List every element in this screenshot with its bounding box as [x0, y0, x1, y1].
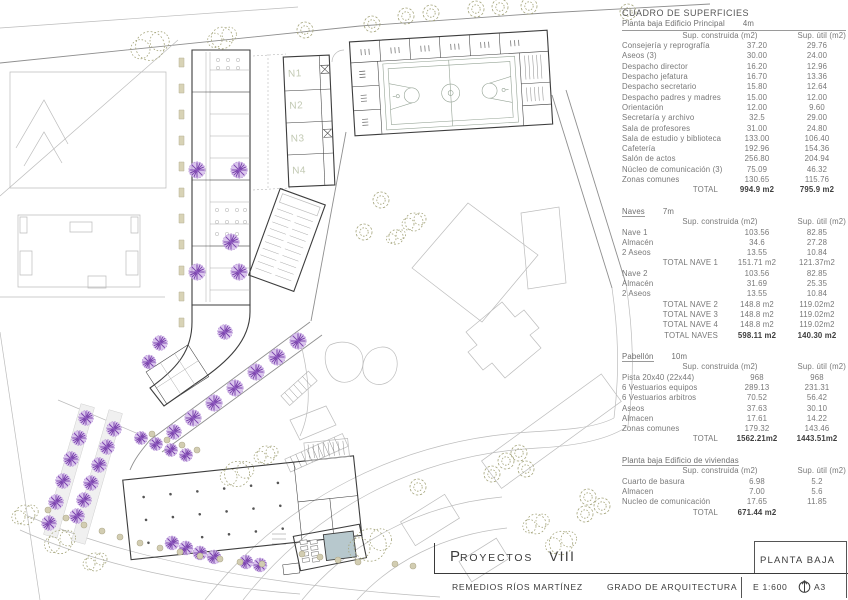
- row-value-constructed: 70.52: [726, 393, 788, 403]
- row-value-useful: 82.85: [788, 228, 846, 238]
- drawing-scale: E 1:600: [753, 582, 788, 592]
- table-row: TOTAL1562.21m21443.51m2: [622, 434, 846, 444]
- row-label: Secretaría y archivo: [622, 113, 726, 123]
- row-label: Nave 1: [622, 228, 726, 238]
- section-heading: Planta baja Edificio de viviendas: [622, 456, 739, 467]
- row-value-useful: 154.36: [788, 144, 846, 154]
- titleblock-divider: [741, 577, 742, 598]
- course-name: GRADO DE ARQUITECTURA: [607, 582, 737, 592]
- row-label: Almacén: [622, 238, 726, 248]
- section-heading: Planta baja Edificio Principal: [622, 19, 725, 30]
- row-value-useful: 30.10: [788, 404, 846, 414]
- row-label: Despacho padres y madres: [622, 93, 726, 103]
- row-value-constructed: 103.56: [726, 269, 788, 279]
- row-value-constructed: 7.00: [726, 487, 788, 497]
- row-value-constructed: 15.00: [726, 93, 788, 103]
- column-headers: Sup. construida (m2)Sup. útil (m2): [622, 217, 846, 227]
- row-value-constructed: 148.8 m2: [726, 300, 788, 310]
- project-title-initial: P: [450, 548, 460, 565]
- table-row: Pista 20x40 (22x44)968968: [622, 373, 846, 383]
- row-label: Despacho secretario: [622, 82, 726, 92]
- table-row: 6 Vestuarios arbitros70.5256.42: [622, 393, 846, 403]
- row-label: Nucleo de comunicación: [622, 497, 726, 507]
- table-section: Naves7mSup. construida (m2)Sup. útil (m2…: [622, 207, 846, 341]
- table-row: TOTAL994.9 m2795.9 m2: [622, 185, 846, 195]
- row-value-useful: 12.64: [788, 82, 846, 92]
- row-value-constructed: 130.65: [726, 175, 788, 185]
- row-label: TOTAL: [622, 508, 726, 518]
- table-row: 2 Aseos13.5510.84: [622, 248, 846, 258]
- row-label: Salón de actos: [622, 154, 726, 164]
- section-size: 10m: [672, 352, 688, 363]
- row-label: Pista 20x40 (22x44): [622, 373, 726, 383]
- row-value-useful: 140.30 m2: [788, 331, 846, 341]
- auditorium: [249, 189, 326, 292]
- context-buildings: [10, 72, 621, 582]
- table-row: 6 Vestuarios equipos289.13231.31: [622, 383, 846, 393]
- paper-size: A3: [814, 582, 826, 592]
- table-section: Pabellón10mSup. construida (m2)Sup. útil…: [622, 352, 846, 445]
- table-row: Aseos (3)30.0024.00: [622, 51, 846, 61]
- row-label: 2 Aseos: [622, 289, 726, 299]
- row-value-useful: 12.96: [788, 62, 846, 72]
- pool: [323, 531, 356, 560]
- table-row: Sala de estudio y biblioteca133.00106.40: [622, 134, 846, 144]
- project-title-rest: ROYECTOS: [460, 552, 533, 564]
- table-title: CUADRO DE SUPERFICIES: [622, 8, 846, 18]
- row-value-constructed: 179.32: [726, 424, 788, 434]
- table-section: Planta baja Edificio Principal4mSup. con…: [622, 19, 846, 195]
- row-value-constructed: 37.63: [726, 404, 788, 414]
- table-row: Despacho director16.2012.96: [622, 62, 846, 72]
- row-label: 6 Vestuarios arbitros: [622, 393, 726, 403]
- row-label: Consejería y reprografía: [622, 41, 726, 51]
- table-row: TOTAL NAVE 1151.71 m2121.37m2: [622, 258, 846, 268]
- row-value-useful: 1443.51m2: [788, 434, 846, 444]
- row-value-useful: 115.76: [788, 175, 846, 185]
- row-label: Orientación: [622, 103, 726, 113]
- row-label: TOTAL NAVE 1: [622, 258, 726, 268]
- row-value-useful: 13.36: [788, 72, 846, 82]
- table-row: Salón de actos256.80204.94: [622, 154, 846, 164]
- row-value-constructed: 133.00: [726, 134, 788, 144]
- naves-building: N1 N2 N3 N4: [283, 55, 335, 187]
- table-row: Almacen7.005.6: [622, 487, 846, 497]
- table-row: Almacen17.6114.22: [622, 414, 846, 424]
- row-value-constructed: 30.00: [726, 51, 788, 61]
- nave-label: N1: [288, 68, 302, 80]
- author-name: REMEDIOS RÍOS MARTÍNEZ: [452, 582, 583, 592]
- section-heading-row: Naves7m: [622, 207, 846, 218]
- row-value-useful: 24.80: [788, 124, 846, 134]
- table-row: Sala de profesores31.0024.80: [622, 124, 846, 134]
- titleblock-rule: [434, 573, 848, 574]
- olive-trees: [12, 0, 636, 571]
- row-value-constructed: 12.00: [726, 103, 788, 113]
- table-row: Núcleo de comunicación (3)75.0946.32: [622, 165, 846, 175]
- row-value-useful: 119.02m2: [788, 310, 846, 320]
- row-label: Nave 2: [622, 269, 726, 279]
- col-header-useful: Sup. útil (m2): [768, 31, 846, 41]
- row-value-useful: 143.46: [788, 424, 846, 434]
- row-value-constructed: 103.56: [726, 228, 788, 238]
- row-value-useful: 106.40: [788, 134, 846, 144]
- row-value-constructed: 148.8 m2: [726, 310, 788, 320]
- table-section: Planta baja Edificio de viviendasSup. co…: [622, 456, 846, 518]
- row-label: Zonas comunes: [622, 424, 726, 434]
- table-row: Almacén31.6925.35: [622, 279, 846, 289]
- column-headers: Sup. construida (m2)Sup. útil (m2): [622, 362, 846, 372]
- table-row: TOTAL NAVES598.11 m2140.30 m2: [622, 331, 846, 341]
- table-row: Almacén34.627.28: [622, 238, 846, 248]
- row-value-constructed: 15.80: [726, 82, 788, 92]
- project-title: PROYECTOSVIII: [450, 548, 575, 566]
- basketball-court: [383, 56, 519, 130]
- bench-markers: [179, 58, 184, 327]
- row-value-constructed: 31.69: [726, 279, 788, 289]
- row-value-constructed: 192.96: [726, 144, 788, 154]
- row-value-useful: 25.35: [788, 279, 846, 289]
- row-value-constructed: 32.5: [726, 113, 788, 123]
- row-value-useful: 5.2: [788, 477, 846, 487]
- row-value-useful: 82.85: [788, 269, 846, 279]
- row-label: TOTAL NAVE 2: [622, 300, 726, 310]
- row-value-useful: 10.84: [788, 289, 846, 299]
- row-label: 2 Aseos: [622, 248, 726, 258]
- row-value-constructed: 16.20: [726, 62, 788, 72]
- row-label: Despacho director: [622, 62, 726, 72]
- row-label: TOTAL NAVES: [622, 331, 726, 341]
- surface-table: CUADRO DE SUPERFICIES Planta baja Edific…: [622, 8, 846, 529]
- nave-label: N2: [289, 100, 303, 112]
- row-value-constructed: 37.20: [726, 41, 788, 51]
- row-value-constructed: 994.9 m2: [726, 185, 788, 195]
- row-value-constructed: 151.71 m2: [726, 258, 788, 268]
- table-row: Consejería y reprografía37.2029.76: [622, 41, 846, 51]
- north-arrow-icon: [797, 578, 812, 594]
- sheet-right-border: [846, 541, 847, 598]
- row-value-useful: 29.76: [788, 41, 846, 51]
- row-label: Aseos: [622, 404, 726, 414]
- row-label: Cuarto de basura: [622, 477, 726, 487]
- sheet-name-box-left: [754, 541, 755, 573]
- row-value-constructed: 16.70: [726, 72, 788, 82]
- col-header-useful: Sup. útil (m2): [768, 466, 846, 476]
- table-row: Secretaría y archivo32.529.00: [622, 113, 846, 123]
- row-value-useful: 11.85: [788, 497, 846, 507]
- table-row: Despacho secretario15.8012.64: [622, 82, 846, 92]
- row-label: Almacen: [622, 487, 726, 497]
- nave-label: N3: [291, 133, 305, 145]
- roads: [0, 4, 710, 600]
- row-value-useful: 10.84: [788, 248, 846, 258]
- sheet-name-box-top: [754, 541, 846, 542]
- table-row: Nucleo de comunicación17.6511.85: [622, 497, 846, 507]
- row-value-useful: 119.02m2: [788, 300, 846, 310]
- row-value-constructed: 17.61: [726, 414, 788, 424]
- row-label: Despacho jefatura: [622, 72, 726, 82]
- row-value-useful: 121.37m2: [788, 258, 846, 268]
- row-value-useful: 204.94: [788, 154, 846, 164]
- section-heading: Pabellón: [622, 352, 654, 363]
- row-label: TOTAL: [622, 434, 726, 444]
- main-building: [146, 50, 250, 406]
- drawing-sheet: N1 N2 N3 N4: [0, 0, 848, 600]
- row-value-constructed: 1562.21m2: [726, 434, 788, 444]
- column-headers: Sup. construida (m2)Sup. útil (m2): [622, 31, 846, 41]
- col-header-constructed: Sup. construida (m2): [672, 217, 768, 227]
- col-header-useful: Sup. útil (m2): [768, 217, 846, 227]
- row-label: Cafetería: [622, 144, 726, 154]
- row-value-constructed: 671.44 m2: [726, 508, 788, 518]
- section-size: 7m: [663, 207, 674, 218]
- row-value-constructed: 148.8 m2: [726, 320, 788, 330]
- row-value-useful: 29.00: [788, 113, 846, 123]
- row-value-constructed: 13.55: [726, 248, 788, 258]
- table-row: TOTAL671.44 m2: [622, 508, 846, 518]
- project-number: VIII: [549, 549, 575, 564]
- table-row: Cuarto de basura6.985.2: [622, 477, 846, 487]
- section-heading: Naves: [622, 207, 645, 218]
- row-label: Almacen: [622, 414, 726, 424]
- row-value-constructed: 6.98: [726, 477, 788, 487]
- row-value-useful: [788, 508, 846, 518]
- surface-table-sections: Planta baja Edificio Principal4mSup. con…: [622, 19, 846, 518]
- row-label: Sala de profesores: [622, 124, 726, 134]
- row-label: Aseos (3): [622, 51, 726, 61]
- table-row: Cafetería192.96154.36: [622, 144, 846, 154]
- table-row: TOTAL NAVE 4148.8 m2119.02m2: [622, 320, 846, 330]
- row-value-constructed: 13.55: [726, 289, 788, 299]
- section-heading-row: Pabellón10m: [622, 352, 846, 363]
- row-value-useful: 56.42: [788, 393, 846, 403]
- table-row: Aseos37.6330.10: [622, 404, 846, 414]
- row-label: TOTAL: [622, 185, 726, 195]
- row-value-useful: 795.9 m2: [788, 185, 846, 195]
- col-header-useful: Sup. útil (m2): [768, 362, 846, 372]
- row-label: Núcleo de comunicación (3): [622, 165, 726, 175]
- table-row: Orientación12.009.60: [622, 103, 846, 113]
- row-value-constructed: 289.13: [726, 383, 788, 393]
- row-value-useful: 231.31: [788, 383, 846, 393]
- row-label: Zonas comunes: [622, 175, 726, 185]
- row-label: Almacén: [622, 279, 726, 289]
- section-size: 4m: [743, 19, 754, 30]
- section-heading-row: Planta baja Edificio de viviendas: [622, 456, 846, 467]
- row-value-useful: 12.00: [788, 93, 846, 103]
- row-value-useful: 5.6: [788, 487, 846, 497]
- section-heading-row: Planta baja Edificio Principal4m: [622, 19, 846, 31]
- column-headers: Sup. construida (m2)Sup. útil (m2): [622, 466, 846, 476]
- row-value-constructed: 75.09: [726, 165, 788, 175]
- row-value-constructed: 31.00: [726, 124, 788, 134]
- nave-label: N4: [292, 165, 306, 177]
- sheet-name: PLANTA BAJA: [760, 555, 835, 566]
- row-value-constructed: 34.6: [726, 238, 788, 248]
- pabellon-building: [349, 30, 552, 136]
- row-value-useful: 9.60: [788, 103, 846, 113]
- col-header-constructed: Sup. construida (m2): [672, 31, 768, 41]
- table-row: Nave 2103.5682.85: [622, 269, 846, 279]
- table-row: Zonas comunes179.32143.46: [622, 424, 846, 434]
- col-header-constructed: Sup. construida (m2): [672, 466, 768, 476]
- titleblock-left-line: [434, 543, 435, 573]
- row-label: TOTAL NAVE 3: [622, 310, 726, 320]
- row-value-constructed: 968: [726, 373, 788, 383]
- row-value-useful: 27.28: [788, 238, 846, 248]
- table-row: Despacho padres y madres15.0012.00: [622, 93, 846, 103]
- row-label: TOTAL NAVE 4: [622, 320, 726, 330]
- table-row: TOTAL NAVE 2148.8 m2119.02m2: [622, 300, 846, 310]
- table-row: 2 Aseos13.5510.84: [622, 289, 846, 299]
- col-header-constructed: Sup. construida (m2): [672, 362, 768, 372]
- row-value-useful: 46.32: [788, 165, 846, 175]
- table-row: Zonas comunes130.65115.76: [622, 175, 846, 185]
- table-row: TOTAL NAVE 3148.8 m2119.02m2: [622, 310, 846, 320]
- row-label: Sala de estudio y biblioteca: [622, 134, 726, 144]
- table-row: Nave 1103.5682.85: [622, 228, 846, 238]
- table-row: Despacho jefatura16.7013.36: [622, 72, 846, 82]
- row-value-constructed: 598.11 m2: [726, 331, 788, 341]
- row-value-constructed: 256.80: [726, 154, 788, 164]
- row-label: 6 Vestuarios equipos: [622, 383, 726, 393]
- row-value-useful: 968: [788, 373, 846, 383]
- row-value-useful: 14.22: [788, 414, 846, 424]
- row-value-useful: 24.00: [788, 51, 846, 61]
- row-value-useful: 119.02m2: [788, 320, 846, 330]
- row-value-constructed: 17.65: [726, 497, 788, 507]
